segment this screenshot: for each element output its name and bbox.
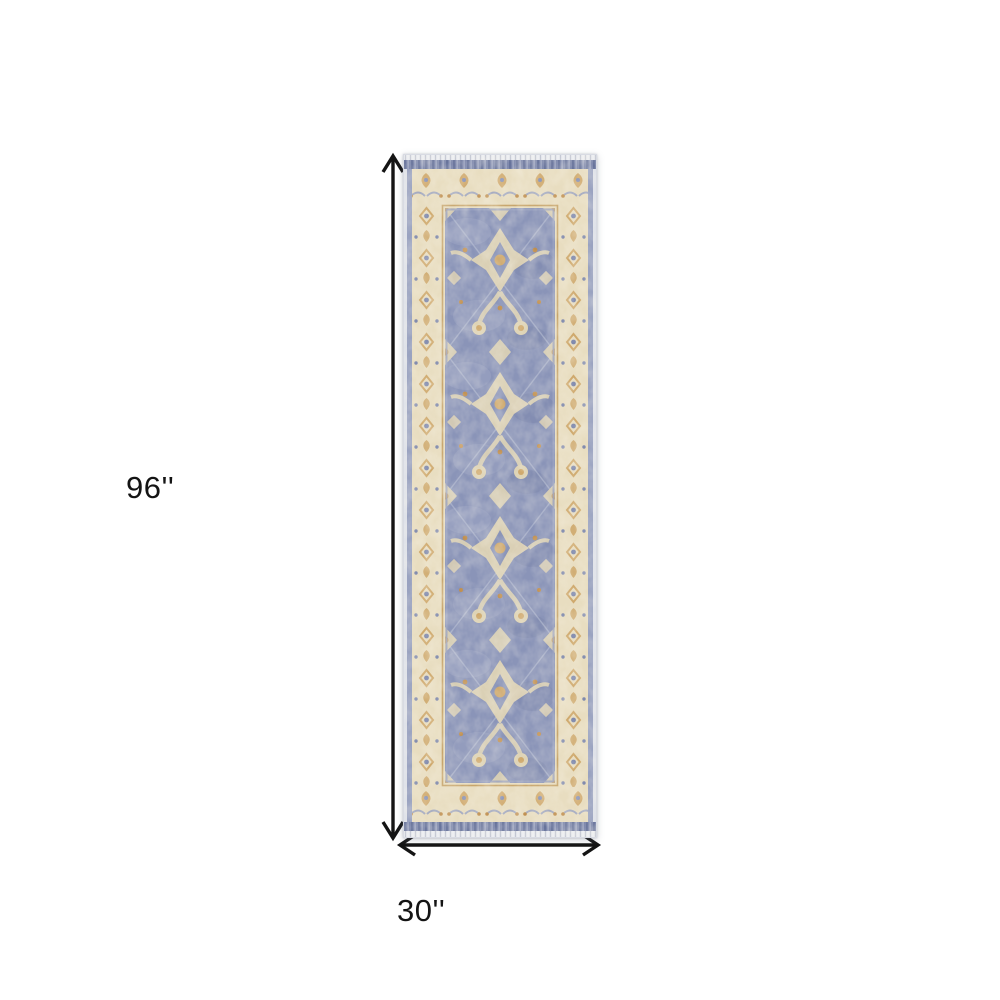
product-dimension-figure: 96'' 30'' <box>0 0 1000 1000</box>
rug-image <box>403 154 597 838</box>
width-dimension-label: 30'' <box>397 893 445 929</box>
rug-distress-overlay <box>403 154 597 838</box>
height-dimension-label: 96'' <box>126 470 174 506</box>
